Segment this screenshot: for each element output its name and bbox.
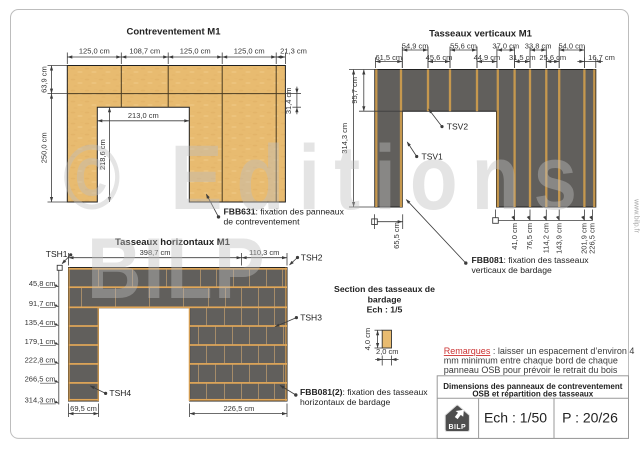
svg-text:P : 20/26: P : 20/26 <box>562 409 618 425</box>
svg-text:TSH2: TSH2 <box>301 252 323 262</box>
svg-text:TSH4: TSH4 <box>109 388 131 398</box>
svg-text:BILP: BILP <box>87 222 266 318</box>
svg-text:45,6 cm: 45,6 cm <box>426 53 453 62</box>
svg-text:© Editions: © Editions <box>63 127 591 229</box>
svg-text:63,9 cm: 63,9 cm <box>40 66 49 93</box>
svg-text:125,0 cm: 125,0 cm <box>79 46 110 55</box>
svg-text:45,8 cm: 45,8 cm <box>29 279 56 288</box>
svg-text:213,0 cm: 213,0 cm <box>128 111 159 120</box>
svg-text:panneau OSB pour prévoir le re: panneau OSB pour prévoir le retrait du b… <box>444 365 618 375</box>
svg-text:verticaux de bardage: verticaux de bardage <box>472 265 552 275</box>
svg-text:250,0 cm: 250,0 cm <box>40 132 49 163</box>
svg-text:horizontaux de bardage: horizontaux de bardage <box>300 397 391 407</box>
svg-text:314,3 cm: 314,3 cm <box>25 395 56 404</box>
svg-text:55,6 cm: 55,6 cm <box>450 42 477 51</box>
svg-text:69,5 cm: 69,5 cm <box>70 404 97 413</box>
svg-text:226,5 cm: 226,5 cm <box>223 404 254 413</box>
svg-text:2,0 cm: 2,0 cm <box>376 347 399 356</box>
svg-text:95,7 cm: 95,7 cm <box>350 77 359 104</box>
svg-text:bardage: bardage <box>368 294 402 304</box>
svg-text:FBB081(2): fixation des tassea: FBB081(2): fixation des tasseaux <box>300 387 428 397</box>
svg-text:31,4 cm: 31,4 cm <box>284 87 293 114</box>
svg-text:Tasseaux verticaux M1: Tasseaux verticaux M1 <box>429 29 533 40</box>
svg-text:135,4 cm: 135,4 cm <box>25 318 56 327</box>
svg-text:44,9 cm: 44,9 cm <box>474 53 501 62</box>
svg-text:179,1 cm: 179,1 cm <box>25 337 56 346</box>
svg-text:21,3 cm: 21,3 cm <box>280 46 307 55</box>
svg-text:www.bilp.fr: www.bilp.fr <box>633 198 640 234</box>
svg-text:54,0 cm: 54,0 cm <box>558 42 585 51</box>
svg-text:OSB et répartition des tasseau: OSB et répartition des tasseaux <box>472 390 593 399</box>
svg-text:Section des tasseaux de: Section des tasseaux de <box>334 284 435 294</box>
svg-text:91,7 cm: 91,7 cm <box>29 299 56 308</box>
svg-text:266,5 cm: 266,5 cm <box>25 375 56 384</box>
svg-text:31,5 cm: 31,5 cm <box>509 53 536 62</box>
svg-text:Remarques : laisser un espacem: Remarques : laisser un espacement d’envi… <box>444 346 635 356</box>
svg-text:FBB081: fixation des tasseaux: FBB081: fixation des tasseaux <box>472 255 590 265</box>
svg-text:222,8 cm: 222,8 cm <box>25 356 56 365</box>
svg-text:Ech : 1/5: Ech : 1/5 <box>367 305 403 315</box>
svg-text:125,0 cm: 125,0 cm <box>180 46 211 55</box>
svg-text:TSH1: TSH1 <box>46 249 68 259</box>
svg-text:Ech : 1/50: Ech : 1/50 <box>484 409 547 425</box>
svg-text:TSH3: TSH3 <box>300 312 322 322</box>
svg-text:33,8 cm: 33,8 cm <box>525 42 552 51</box>
svg-text:37,0 cm: 37,0 cm <box>492 42 519 51</box>
svg-text:25,6 cm: 25,6 cm <box>539 53 566 62</box>
svg-text:125,0 cm: 125,0 cm <box>234 46 265 55</box>
svg-text:61,5 cm: 61,5 cm <box>376 53 403 62</box>
svg-text:Contreventement M1: Contreventement M1 <box>127 27 222 38</box>
svg-text:54,9 cm: 54,9 cm <box>402 42 429 51</box>
svg-text:16,7 cm: 16,7 cm <box>588 53 615 62</box>
svg-text:108,7 cm: 108,7 cm <box>129 46 160 55</box>
svg-text:BILP: BILP <box>449 424 467 431</box>
svg-text:4,0 cm: 4,0 cm <box>363 328 372 351</box>
